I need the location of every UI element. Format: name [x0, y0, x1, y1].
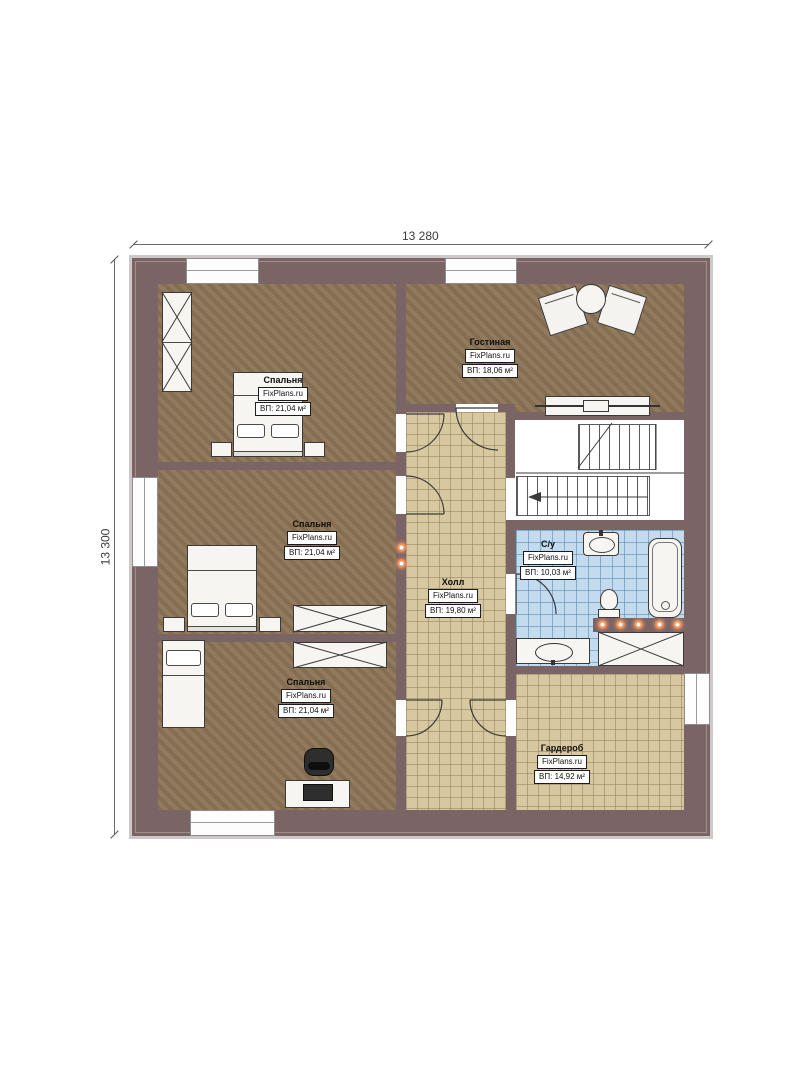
door-opening-living: [456, 404, 498, 412]
dimension-line-top: [133, 244, 709, 245]
spotlight-icon: [598, 620, 607, 629]
spotlight-icon: [673, 620, 682, 629]
room-name: С/у: [541, 538, 555, 550]
nightstand: [211, 442, 232, 457]
room-label-living: Гостиная FixPlans.ru ВП: 18,06 м²: [462, 336, 518, 378]
room-area: ВП: 18,06 м²: [462, 364, 518, 378]
room-name: Спальня: [293, 518, 332, 530]
stairs-lower-flight: [516, 476, 650, 516]
pillow: [191, 603, 219, 617]
door-opening-bedroom-2: [396, 476, 406, 514]
bathtub: [648, 538, 682, 618]
brand-watermark: FixPlans.ru: [281, 689, 331, 703]
room-area: ВП: 10,03 м²: [520, 566, 576, 580]
room-label-bathroom: С/у FixPlans.ru ВП: 10,03 м²: [520, 538, 576, 580]
room-name: Гостиная: [470, 336, 511, 348]
room-area: ВП: 21,04 м²: [278, 704, 334, 718]
brand-watermark: FixPlans.ru: [428, 589, 478, 603]
pillow: [237, 424, 265, 438]
dimension-line-left: [114, 259, 115, 835]
dimension-left-label: 13 300: [98, 525, 112, 570]
floorplan-page: 13 280 13 300: [0, 0, 792, 1080]
window-bottom: [190, 810, 275, 836]
toilet-tank: [598, 609, 620, 618]
room-area: ВП: 21,04 м²: [284, 546, 340, 560]
wall-light-icon: [397, 559, 406, 568]
wardrobe-cabinet: [162, 292, 192, 392]
window-top-left: [186, 258, 259, 284]
office-chair: [304, 748, 334, 776]
nightstand: [259, 617, 281, 632]
room-label-bedroom-3: Спальня FixPlans.ru ВП: 21,04 м²: [278, 676, 334, 718]
room-name: Спальня: [287, 676, 326, 688]
stairs-opening: [506, 478, 515, 520]
spotlight-icon: [616, 620, 625, 629]
dresser: [293, 605, 387, 632]
vanity-sink: [516, 638, 590, 664]
double-bed: [187, 545, 257, 632]
door-opening-bedroom-3: [396, 700, 406, 736]
room-name: Холл: [442, 576, 465, 588]
floorplan: Спальня FixPlans.ru ВП: 21,04 м² Гостина…: [132, 258, 710, 836]
nightstand: [163, 617, 185, 632]
window-left: [132, 477, 158, 567]
pillow: [225, 603, 253, 617]
dresser: [293, 642, 387, 668]
pillow: [166, 650, 201, 666]
toilet-bowl: [600, 589, 618, 610]
room-label-bedroom-1: Спальня FixPlans.ru ВП: 21,04 м²: [255, 374, 311, 416]
nightstand: [304, 442, 325, 457]
room-area: ВП: 21,04 м²: [255, 402, 311, 416]
window-top-right: [445, 258, 517, 284]
room-name: Гардероб: [541, 742, 584, 754]
spotlight-icon: [634, 620, 643, 629]
tv-center-box: [583, 400, 609, 412]
door-opening-bedroom-1: [396, 414, 406, 452]
room-area: ВП: 14,92 м²: [534, 770, 590, 784]
room-area: ВП: 19,80 м²: [425, 604, 481, 618]
door-opening-wardrobe: [506, 700, 516, 736]
room-label-hall: Холл FixPlans.ru ВП: 19,80 м²: [425, 576, 481, 618]
room-label-wardrobe: Гардероб FixPlans.ru ВП: 14,92 м²: [534, 742, 590, 784]
stairs-upper-flight: [578, 424, 656, 470]
brand-watermark: FixPlans.ru: [465, 349, 515, 363]
window-right: [684, 673, 710, 725]
brand-watermark: FixPlans.ru: [258, 387, 308, 401]
spotlight-icon: [655, 620, 664, 629]
room-label-bedroom-2: Спальня FixPlans.ru ВП: 21,04 м²: [284, 518, 340, 560]
brand-watermark: FixPlans.ru: [523, 551, 573, 565]
laptop: [303, 784, 333, 801]
wall-light-icon: [397, 543, 406, 552]
wall-sink: [583, 532, 619, 556]
coffee-table: [576, 284, 606, 314]
door-opening-bathroom: [506, 574, 516, 614]
shower-cabin: [598, 632, 684, 666]
dimension-top-label: 13 280: [398, 229, 443, 243]
brand-watermark: FixPlans.ru: [537, 755, 587, 769]
pillow: [271, 424, 299, 438]
room-name: Спальня: [264, 374, 303, 386]
brand-watermark: FixPlans.ru: [287, 531, 337, 545]
